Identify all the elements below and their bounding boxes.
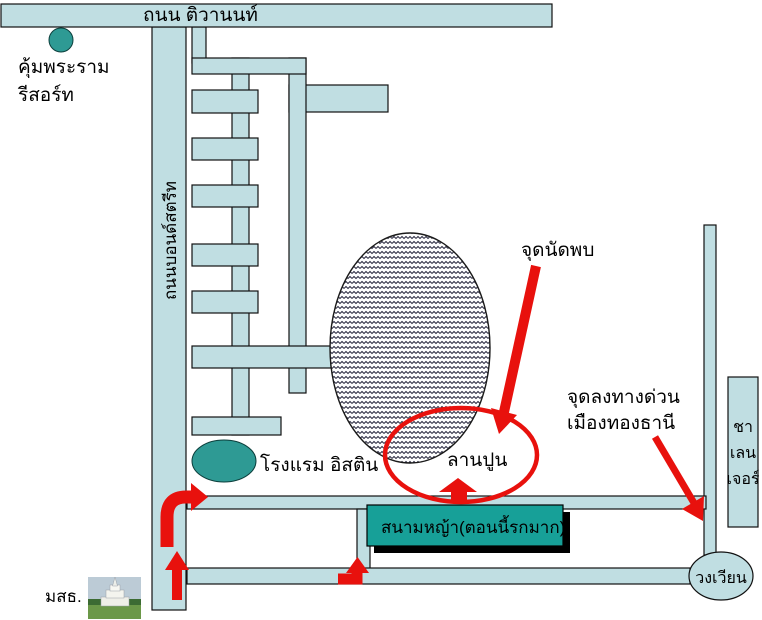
side-street-rung-5	[192, 291, 258, 313]
concrete-yard-label: ลานปูน	[447, 450, 507, 471]
side-street-long-rung	[192, 346, 331, 368]
side-street-rung-4	[192, 244, 258, 266]
challenger-label-line2: เลน	[730, 445, 756, 462]
resort-marker	[49, 28, 73, 52]
expressway-exit-label-line1: จุดลงทางด่วน	[567, 387, 680, 409]
side-street-stub-rung	[192, 417, 281, 435]
tiwanon-road-bar	[1, 4, 552, 27]
route-map-svg: ถนน ติวานนท์ คุ้มพระราม รีสอร์ท ถนนบอนด์…	[0, 0, 762, 620]
hotel-marker	[192, 440, 256, 482]
tiwanon-road-label: ถนน ติวานนท์	[143, 4, 258, 26]
side-street-bar-b	[289, 58, 306, 393]
side-street-rung-2	[192, 138, 258, 160]
up-arrow-concrete-yard-head	[439, 478, 477, 492]
hotel-label: โรงแรม อิสติน	[260, 453, 378, 476]
challenger-label-line3: เจอร์	[726, 469, 759, 488]
elbow-arrow-bottom-road	[338, 573, 357, 579]
expressway-exit-arrow	[655, 437, 694, 503]
side-street-top-rung	[192, 58, 306, 74]
route-map: ถนน ติวานนท์ คุ้มพระราม รีสอร์ท ถนนบอนด์…	[0, 0, 762, 620]
side-street-rung-3	[192, 185, 258, 207]
challenger-label-line1: ชา	[733, 419, 753, 436]
expressway-exit-label-line2: เมืองทองธานี	[567, 412, 675, 434]
photo-grass	[88, 605, 141, 619]
side-street-rung-1	[192, 90, 258, 113]
university-label: มสธ.	[45, 587, 82, 606]
stou-photo	[88, 577, 141, 619]
hatched-area-ellipse	[330, 233, 490, 463]
resort-label-line1: คุ้มพระราม	[18, 57, 110, 79]
bond-street-road-label: ถนนบอนด์สตรีท	[161, 181, 180, 300]
up-arrow-main-road-shaft	[172, 568, 182, 600]
roundabout-label: วงเวียน	[695, 569, 747, 587]
resort-label-line2: รีสอร์ท	[17, 84, 74, 106]
photo-building-base	[101, 597, 129, 606]
meeting-point-label: จุดนัดพบ	[521, 240, 594, 262]
lawn-label: สนามหญ้า(ตอนนี้รกมาก)	[381, 515, 565, 537]
meeting-point-arrow	[504, 266, 536, 412]
bottom-horizontal-road	[187, 568, 690, 584]
